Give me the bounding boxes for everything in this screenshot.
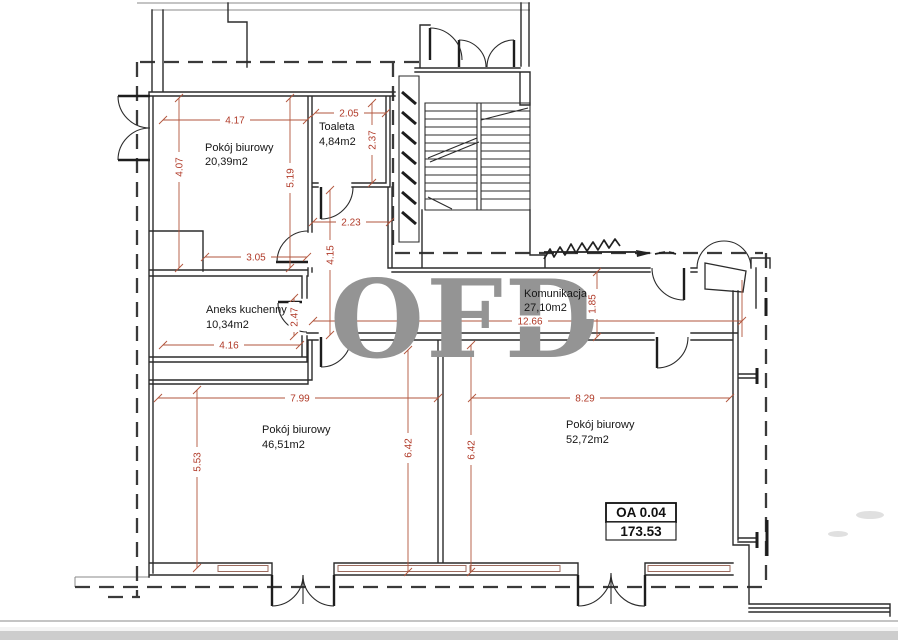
stairwell: [425, 103, 530, 210]
dim-hallway-length: 12.66: [517, 317, 542, 328]
room-name-office-top: Pokój biurowy: [205, 142, 274, 154]
dim-kitchenette-width: 4.16: [219, 341, 239, 352]
dim-office-top-height-right: 5.19: [286, 168, 297, 188]
floor-plan-page: OFD Pokój biurowy 20,39m2 Toaleta 4,84m2…: [0, 0, 898, 640]
unit-label-box: OA 0.04 173.53: [606, 503, 676, 540]
dim-office-left-height: 5.53: [193, 452, 204, 472]
room-name-kitchenette: Aneks kuchenny: [206, 304, 287, 316]
room-name-hallway: Komunikacja: [524, 288, 588, 300]
dim-kitchenette-height: 2.47: [290, 307, 301, 327]
dim-office-top-width: 4.17: [225, 116, 245, 127]
unit-code: OA 0.04: [616, 505, 666, 520]
room-area-kitchenette: 10,34m2: [206, 319, 249, 331]
dim-corridor-height: 4.15: [326, 245, 337, 265]
floor-plan-drawing: OFD Pokój biurowy 20,39m2 Toaleta 4,84m2…: [0, 0, 898, 640]
room-area-hallway: 27,10m2: [524, 302, 567, 314]
watermark: OFD: [330, 257, 600, 383]
dim-office-left-height-right: 6.42: [404, 438, 415, 458]
room-area-office-right: 52,72m2: [566, 434, 609, 446]
room-name-toilet: Toaleta: [319, 121, 355, 133]
room-area-office-left: 46,51m2: [262, 439, 305, 451]
scan-smudges: [828, 511, 884, 537]
unit-area: 173.53: [620, 524, 662, 539]
room-area-office-top: 20,39m2: [205, 156, 248, 168]
dim-toilet-width: 2.05: [339, 109, 359, 120]
scribble-annotation: [544, 239, 676, 259]
dim-office-top-height-left: 4.07: [175, 157, 186, 177]
dim-office-top-bottom: 3.05: [246, 253, 266, 264]
room-area-toilet: 4,84m2: [319, 136, 356, 148]
dim-toilet-height: 2.37: [368, 130, 379, 150]
room-name-office-right: Pokój biurowy: [566, 419, 635, 431]
dim-office-right-height-left: 6.42: [467, 440, 478, 460]
open-door-leaf: [705, 263, 746, 292]
dim-office-right-width: 8.29: [575, 394, 595, 405]
dim-hallway-width: 1.85: [588, 294, 599, 314]
room-name-office-left: Pokój biurowy: [262, 424, 331, 436]
elevator-shaft: [399, 76, 419, 242]
dim-office-left-width: 7.99: [290, 394, 310, 405]
page-bottom-bar: [0, 627, 898, 640]
dim-corridor-width: 2.23: [341, 218, 361, 229]
